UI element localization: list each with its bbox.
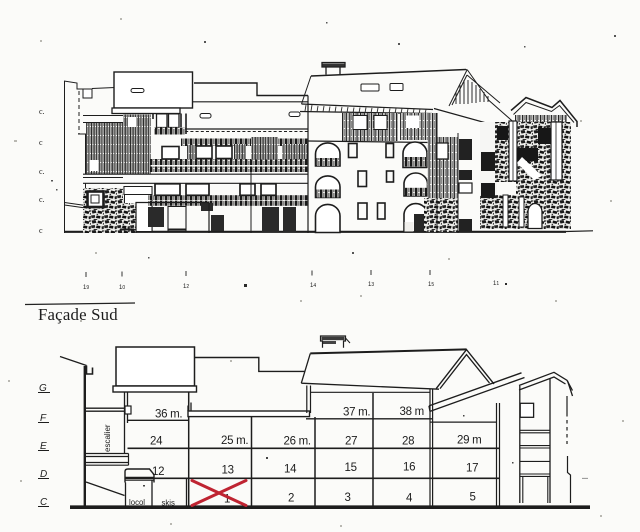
- svg-text:15: 15: [345, 462, 357, 474]
- svg-text:12: 12: [152, 466, 164, 478]
- svg-text:37 m.: 37 m.: [343, 407, 370, 419]
- svg-text:c: c: [39, 226, 43, 235]
- svg-text:13: 13: [222, 465, 234, 477]
- svg-text:26 m.: 26 m.: [284, 436, 311, 448]
- svg-text:escalier: escalier: [103, 424, 112, 452]
- svg-text:c: c: [39, 138, 43, 147]
- svg-text:16: 16: [403, 462, 415, 474]
- svg-text:c.: c.: [39, 167, 45, 176]
- svg-text:5: 5: [470, 492, 476, 504]
- svg-text:29 m: 29 m: [457, 435, 481, 447]
- svg-text:14: 14: [310, 283, 316, 289]
- svg-text:17: 17: [466, 463, 478, 475]
- svg-text:38 m: 38 m: [400, 406, 424, 418]
- svg-text:19: 19: [83, 285, 89, 291]
- svg-text:4: 4: [406, 493, 413, 505]
- svg-text:2: 2: [288, 493, 294, 505]
- svg-text:13: 13: [368, 282, 374, 288]
- svg-text:24: 24: [150, 436, 163, 448]
- svg-text:36 m.: 36 m.: [155, 409, 182, 421]
- svg-text:28: 28: [402, 436, 414, 448]
- svg-text:14: 14: [284, 464, 297, 476]
- svg-text:15: 15: [428, 282, 434, 288]
- svg-text:c.: c.: [39, 107, 45, 116]
- svg-text:27: 27: [345, 436, 357, 448]
- svg-text:Façade Sud: Façade Sud: [38, 305, 118, 324]
- svg-text:11: 11: [493, 281, 499, 287]
- svg-text:3: 3: [345, 492, 351, 504]
- svg-text:25 m.: 25 m.: [221, 435, 248, 447]
- svg-text:10: 10: [119, 285, 125, 291]
- svg-text:c.: c.: [39, 195, 45, 204]
- svg-text:12: 12: [183, 284, 189, 290]
